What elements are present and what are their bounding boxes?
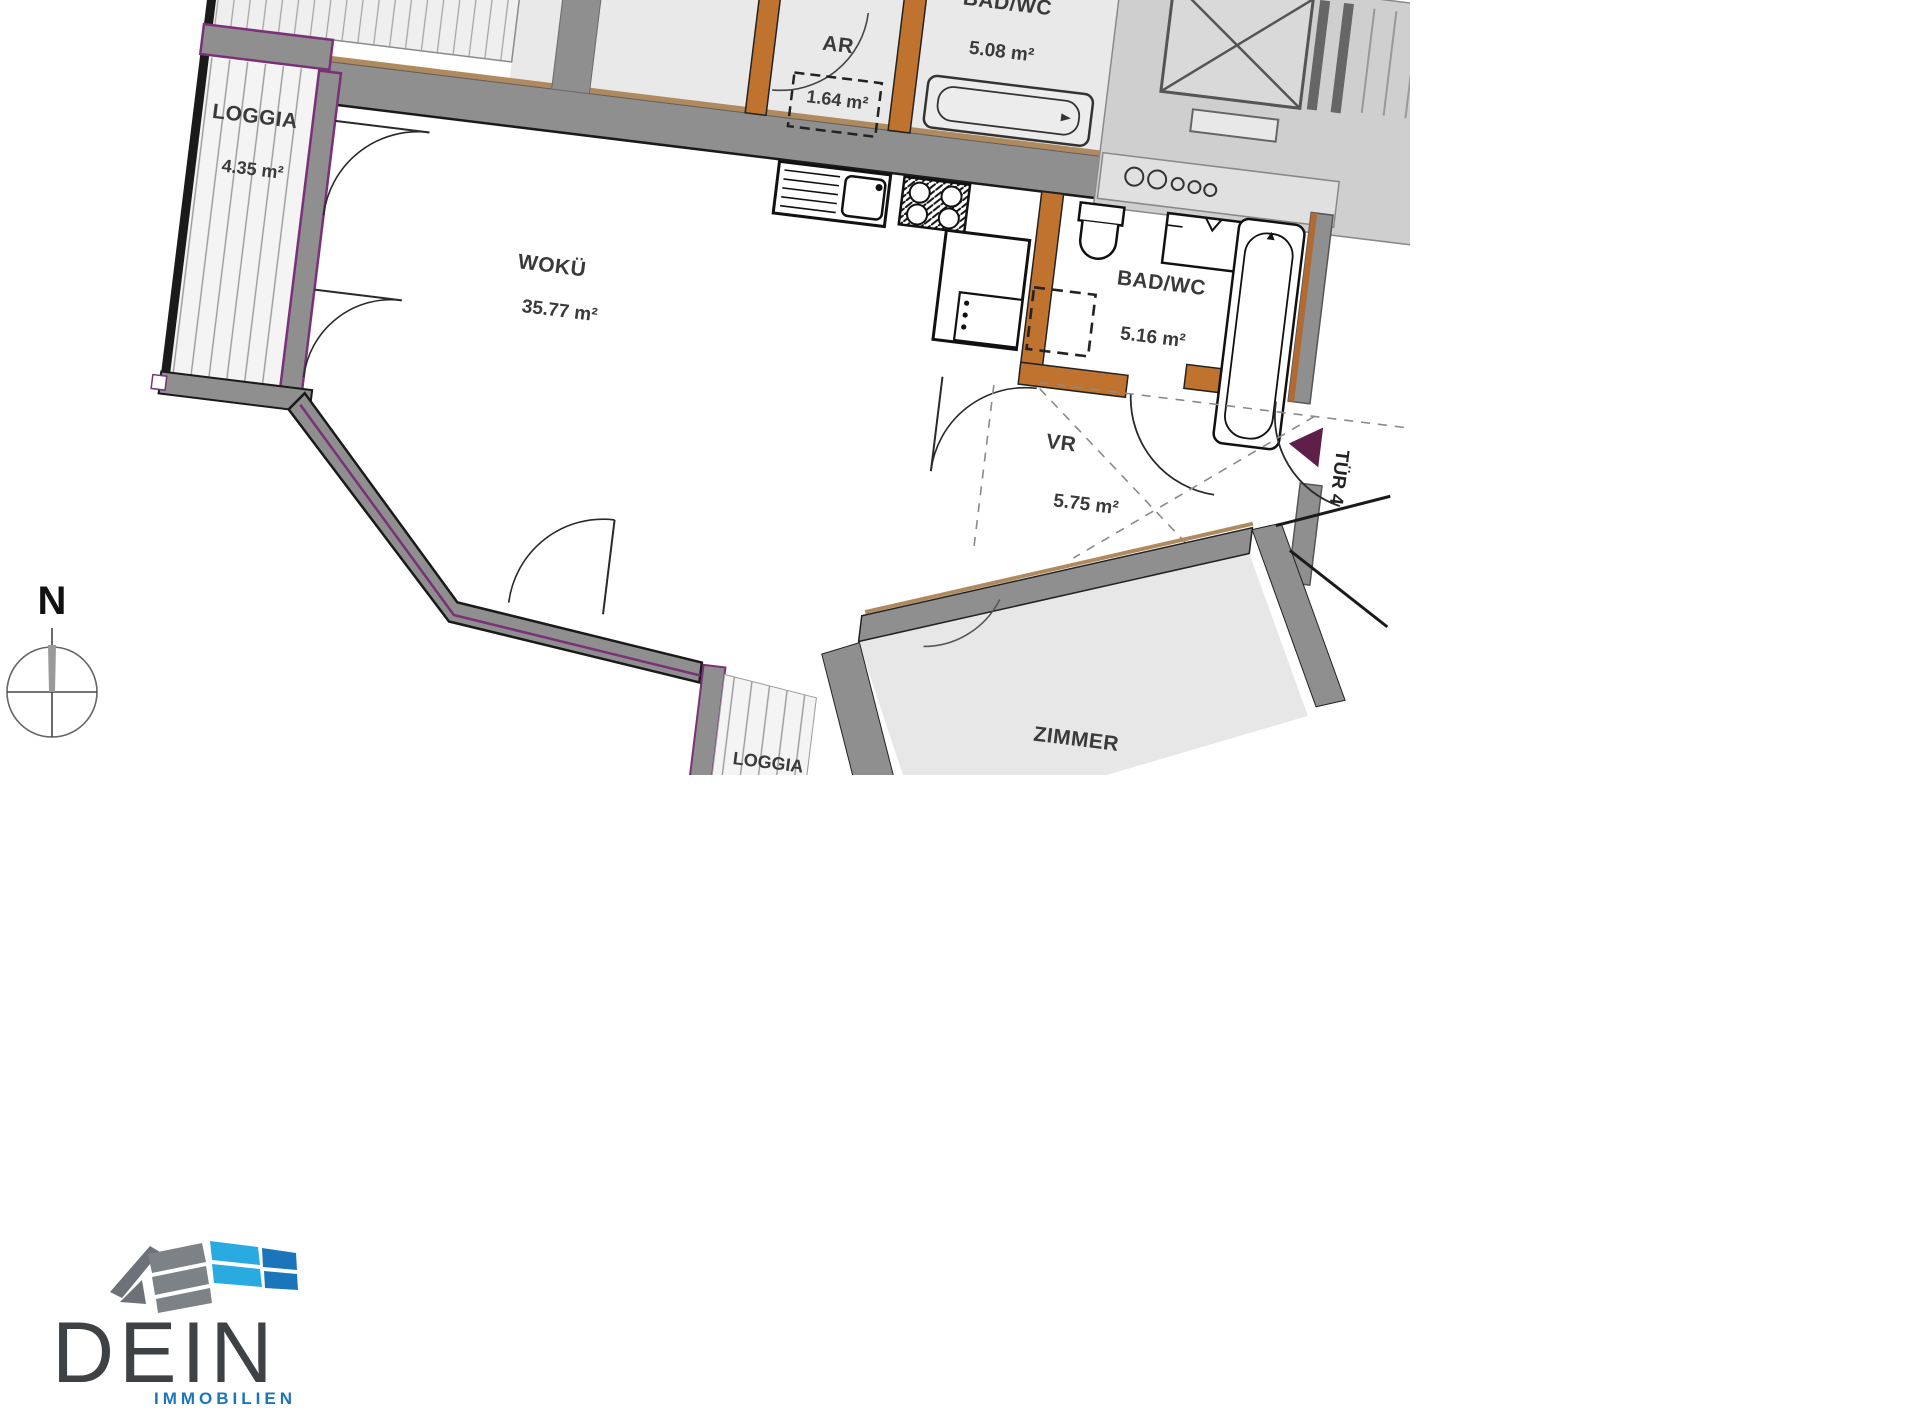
toilet-icon <box>1074 202 1124 261</box>
stove-icon <box>899 177 970 233</box>
room-label-woku: WOKÜ <box>517 250 588 281</box>
floor-plan-rotated-group: AR 1.64 m² BAD/WC 5.08 m² <box>109 0 1470 886</box>
compass-needle <box>48 645 56 692</box>
room-label-vr: VR <box>1045 430 1078 457</box>
floor-plan-canvas: AR 1.64 m² BAD/WC 5.08 m² <box>0 0 1920 1426</box>
logo-subtitle-text: IMMOBILIEN <box>154 1389 296 1408</box>
floor-plan-clip-group: AR 1.64 m² BAD/WC 5.08 m² <box>109 0 1470 886</box>
bad-door-arc <box>1120 394 1225 495</box>
area-label-vr: 5.75 m² <box>1052 490 1120 519</box>
logo-building-icon <box>110 1241 298 1313</box>
floor-plan-page: AR 1.64 m² BAD/WC 5.08 m² <box>0 0 1920 1426</box>
loggia-bottom-hatched <box>710 674 818 807</box>
loggia-door-2 <box>304 290 402 388</box>
loggia-door-1 <box>324 121 430 227</box>
woku-bottom-wall <box>262 391 729 682</box>
room-label-ar: AR <box>821 32 855 59</box>
logo-brand-text: DEIN <box>52 1305 277 1401</box>
kitchen-counter-icon <box>933 230 1030 349</box>
area-label-bad-wc: 5.16 m² <box>1119 323 1187 352</box>
wall-corner-detail <box>151 375 167 391</box>
woku-french-door <box>509 508 615 614</box>
compass-north-icon: N <box>7 579 97 737</box>
entrance-door-marker <box>1286 424 1323 468</box>
company-logo: DEIN IMMOBILIEN <box>52 1241 298 1408</box>
entrance-door-label: TÜR 4 <box>1325 449 1353 506</box>
area-label-woku: 35.77 m² <box>521 296 599 326</box>
elevator-shaft-icon <box>1161 0 1313 108</box>
compass-north-label: N <box>38 579 67 623</box>
vr-door-to-woku <box>931 377 1037 483</box>
room-label-bad-wc: BAD/WC <box>1116 266 1207 300</box>
